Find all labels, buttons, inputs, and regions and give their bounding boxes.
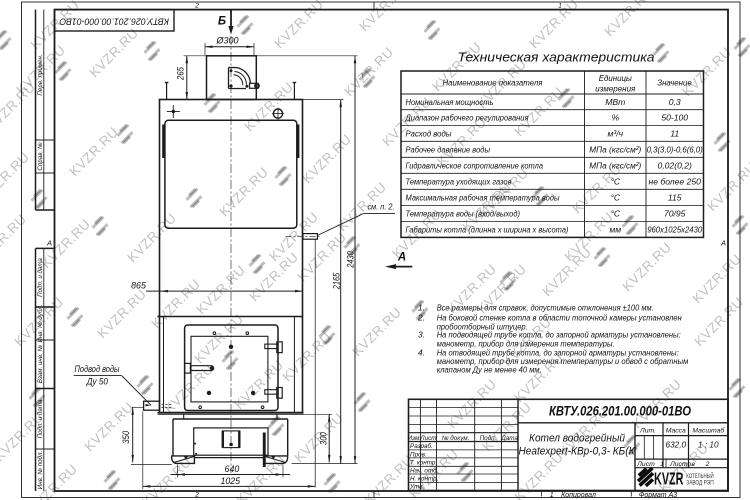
svg-text:0,02(0,2): 0,02(0,2) bbox=[657, 160, 692, 170]
svg-text:Листов: Листов bbox=[669, 461, 695, 468]
svg-text:Расход воды: Расход воды bbox=[406, 128, 453, 138]
svg-text:960х1025х2430: 960х1025х2430 bbox=[647, 224, 702, 234]
svg-text:Лист: Лист bbox=[419, 435, 436, 442]
svg-text:№ докум.: № докум. bbox=[442, 434, 470, 442]
svg-text:1: 1 bbox=[550, 492, 554, 499]
svg-text:Инв. № дубл.: Инв. № дубл. bbox=[37, 304, 44, 342]
svg-text:350: 350 bbox=[121, 431, 131, 444]
svg-text:Масштаб: Масштаб bbox=[692, 427, 725, 435]
svg-text:МПа (кгс/см²): МПа (кгс/см²) bbox=[589, 160, 641, 170]
svg-text:%: % bbox=[611, 113, 619, 123]
svg-text:МВт: МВт bbox=[605, 97, 625, 107]
svg-text:Единицы: Единицы bbox=[599, 73, 633, 83]
svg-text:300: 300 bbox=[318, 432, 328, 445]
svg-text:Лист: Лист bbox=[636, 461, 655, 468]
svg-text:Гидравлическое сопротивление к: Гидравлическое сопротивление котла bbox=[406, 160, 544, 170]
svg-text:1: 1 bbox=[660, 461, 664, 468]
svg-text:865: 865 bbox=[131, 281, 146, 291]
svg-text:11: 11 bbox=[670, 128, 679, 138]
svg-text:2: 2 bbox=[194, 492, 199, 499]
svg-text:°С: °С bbox=[610, 176, 620, 186]
svg-text:клапаном Ду не менее 40 мм.: клапаном Ду не менее 40 мм. bbox=[437, 365, 542, 375]
svg-text:°С: °С bbox=[610, 208, 620, 218]
svg-text:Взам. инв. №: Взам. инв. № bbox=[37, 345, 44, 384]
svg-text:Подп. и дата: Подп. и дата bbox=[37, 399, 44, 438]
svg-text:632,0: 632,0 bbox=[666, 441, 687, 450]
svg-text:2.: 2. bbox=[417, 312, 425, 322]
svg-text:640: 640 bbox=[225, 464, 240, 474]
svg-text:не более 250: не более 250 bbox=[648, 176, 701, 186]
svg-text:2430: 2430 bbox=[346, 251, 356, 268]
svg-text:КОТЕЛЬНЫЙ: КОТЕЛЬНЫЙ bbox=[686, 472, 713, 480]
svg-text:1.: 1. bbox=[418, 303, 425, 313]
svg-text:КВТУ.026.201.00.000-01ВО: КВТУ.026.201.00.000-01ВО bbox=[59, 16, 169, 26]
svg-text:2: 2 bbox=[705, 461, 710, 468]
svg-text:КВТУ.026.201.00.000-01ВО: КВТУ.026.201.00.000-01ВО bbox=[549, 403, 691, 419]
svg-text:ЗАВОД РЭП: ЗАВОД РЭП bbox=[686, 481, 713, 487]
svg-text:Пров.: Пров. bbox=[410, 451, 427, 458]
svg-text:Габариты котла (длинна х ширин: Габариты котла (длинна х ширина х высота… bbox=[406, 224, 569, 234]
svg-text:Н. контр.: Н. контр. bbox=[410, 476, 438, 483]
svg-text:0,3: 0,3 bbox=[669, 97, 681, 107]
svg-text:Б: Б bbox=[218, 16, 226, 28]
svg-text:3.: 3. bbox=[418, 330, 425, 340]
svg-text:Дата: Дата bbox=[500, 435, 518, 442]
svg-text:°С: °С bbox=[610, 192, 620, 202]
svg-text:Подп.: Подп. bbox=[480, 434, 497, 442]
svg-text:Нач. отд.: Нач. отд. bbox=[410, 467, 438, 475]
svg-text:Утв.: Утв. bbox=[409, 484, 424, 491]
svg-text:Диапазон рабочего регулировани: Диапазон рабочего регулирования bbox=[405, 113, 529, 123]
svg-text:Справ. №: Справ. № bbox=[37, 142, 44, 170]
svg-text:Изм.: Изм. bbox=[408, 435, 421, 442]
svg-text:0,3(3,0)-0,6(6,0): 0,3(3,0)-0,6(6,0) bbox=[647, 144, 703, 154]
svg-text:1: 1 bbox=[558, 3, 562, 10]
svg-text:Разраб.: Разраб. bbox=[410, 442, 433, 450]
svg-text:Heatexpert-КВр-0,3- КБ(К: Heatexpert-КВр-0,3- КБ(К bbox=[519, 446, 636, 458]
svg-text:А: А bbox=[397, 251, 406, 263]
svg-text:Т. контр.: Т. контр. bbox=[410, 459, 437, 466]
svg-text:70/95: 70/95 bbox=[664, 208, 686, 218]
svg-text:м³/ч: м³/ч bbox=[608, 128, 624, 138]
svg-text:Все размеры для справок, допус: Все размеры для справок, допустимые откл… bbox=[437, 303, 654, 313]
svg-text:2: 2 bbox=[194, 3, 199, 10]
svg-text:А: А bbox=[46, 239, 52, 248]
svg-text:Перв. примен.: Перв. примен. bbox=[37, 54, 44, 95]
svg-text:Номинальная мощность: Номинальная мощность bbox=[406, 97, 494, 107]
svg-text:115: 115 bbox=[668, 192, 682, 202]
svg-text:Котел водогрейный: Котел водогрейный bbox=[529, 433, 626, 445]
svg-text:1 : 10: 1 : 10 bbox=[698, 441, 719, 450]
svg-text:Формат А3: Формат А3 bbox=[639, 492, 677, 499]
svg-text:2165: 2165 bbox=[331, 273, 341, 290]
svg-text:Масса: Масса bbox=[666, 428, 686, 435]
svg-text:KVZR: KVZR bbox=[654, 468, 684, 488]
svg-text:4.: 4. bbox=[418, 347, 425, 357]
svg-text:А: А bbox=[720, 239, 726, 248]
svg-text:мм: мм bbox=[609, 224, 621, 234]
svg-text:Подвод воды: Подвод воды bbox=[75, 364, 120, 374]
svg-text:Ду 50: Ду 50 bbox=[86, 376, 108, 386]
svg-text:Техническая характеристика: Техническая характеристика bbox=[458, 50, 655, 65]
svg-text:265: 265 bbox=[176, 67, 186, 81]
svg-text:см. п. 2.: см. п. 2. bbox=[368, 203, 395, 212]
svg-text:Температура воды (вход/выход): Температура воды (вход/выход) bbox=[406, 208, 521, 218]
svg-text:Ø300: Ø300 bbox=[215, 36, 238, 46]
svg-text:50-100: 50-100 bbox=[661, 113, 688, 123]
svg-text:1025: 1025 bbox=[221, 476, 241, 486]
svg-text:Значение: Значение bbox=[657, 78, 692, 88]
svg-text:Копировал: Копировал bbox=[561, 492, 596, 499]
svg-text:Наименование показателя: Наименование показателя bbox=[443, 78, 543, 88]
svg-text:Подп. и дата: Подп. и дата bbox=[37, 258, 44, 297]
svg-text:Лит.: Лит. bbox=[639, 428, 656, 435]
svg-text:измерения: измерения bbox=[595, 84, 635, 94]
svg-text:Температура уходящих газов: Температура уходящих газов bbox=[406, 176, 512, 186]
svg-text:МПа (кгс/см²): МПа (кгс/см²) bbox=[589, 144, 641, 154]
svg-text:Рабочее давление воды: Рабочее давление воды bbox=[406, 144, 491, 154]
svg-text:Максимальная рабочая температу: Максимальная рабочая температура воды bbox=[406, 192, 561, 202]
svg-text:Инв. № подл.: Инв. № подл. bbox=[37, 451, 44, 489]
